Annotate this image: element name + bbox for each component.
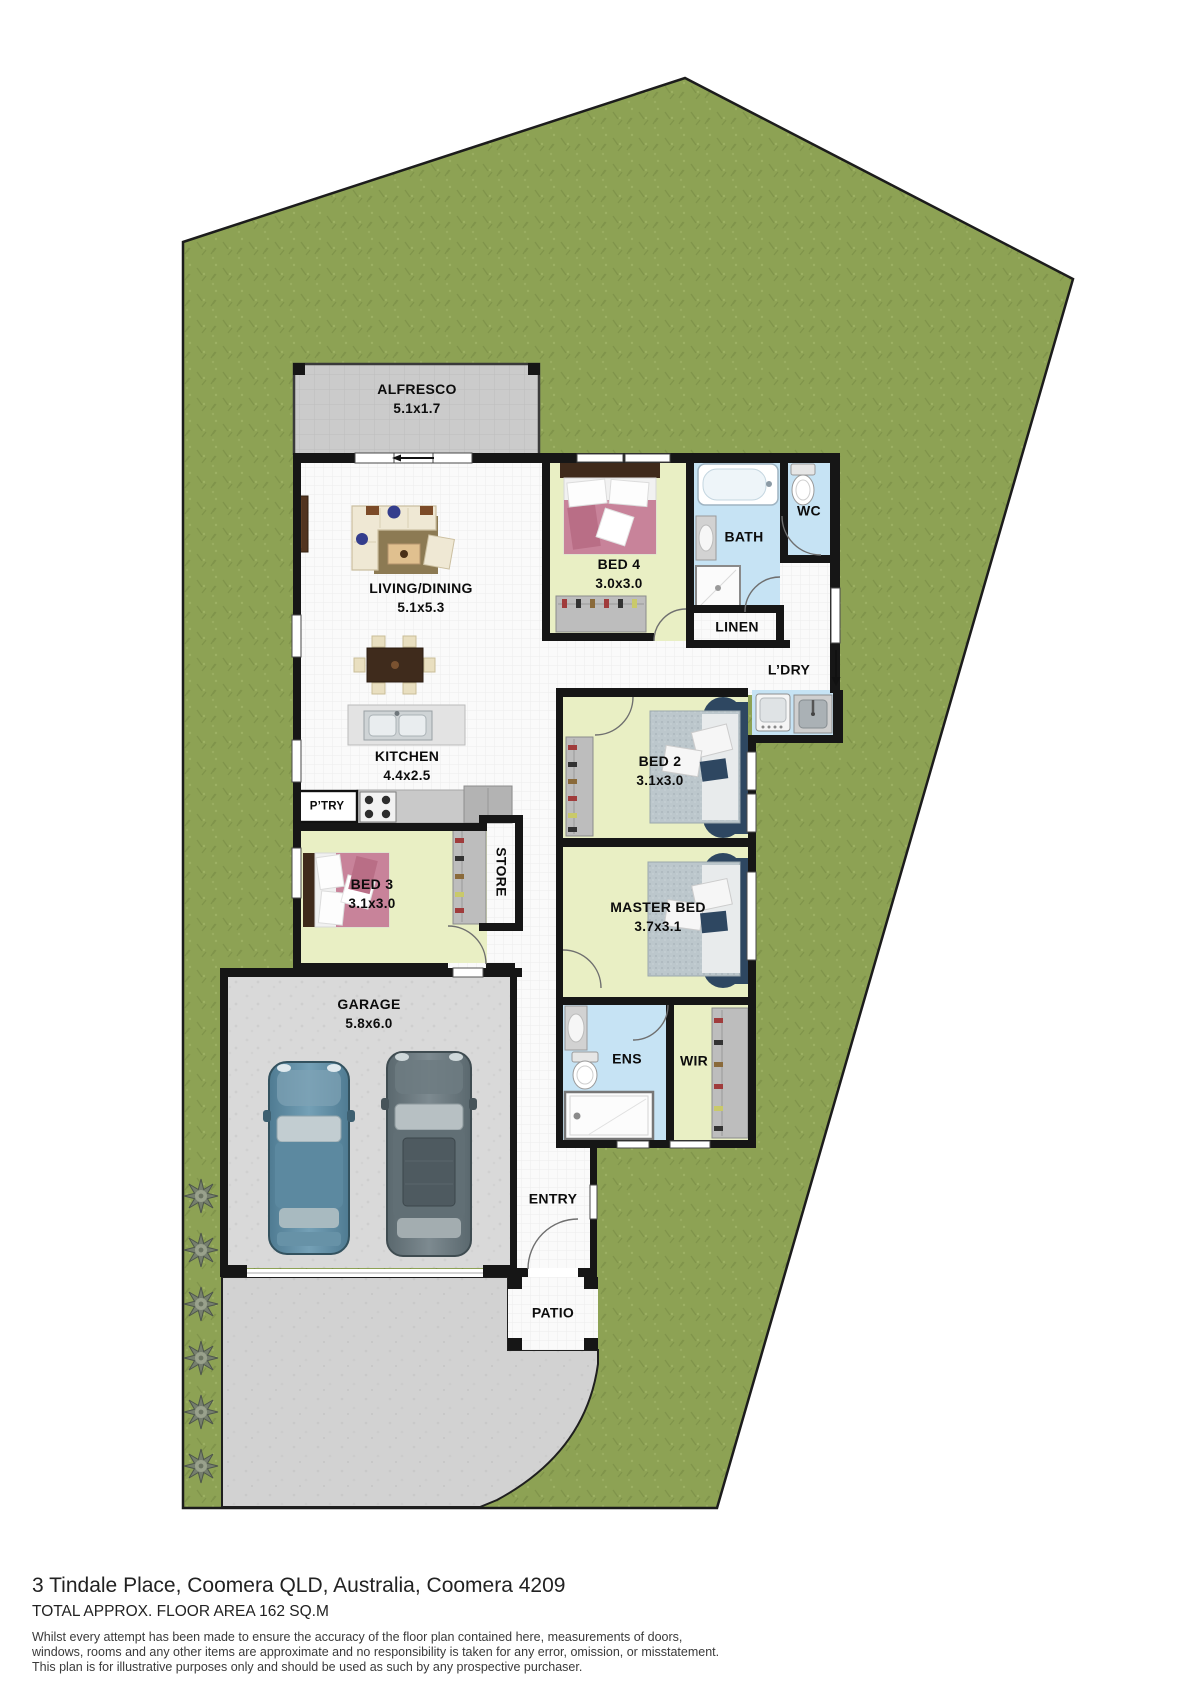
disclaimer: Whilst every attempt has been made to en… [32,1630,719,1674]
bush-icon [184,1287,218,1321]
room-name: MASTER BED [610,899,706,915]
garage-internal-door [453,968,483,977]
room-name: ALFRESCO [377,381,456,397]
bed-4 [560,463,660,554]
room-name: LIVING/DINING [369,580,472,596]
room-label-patio: PATIO [532,1304,574,1323]
room-name: WIR [680,1053,708,1069]
address: 3 Tindale Place, Coomera QLD, Australia,… [32,1572,719,1599]
window [747,794,756,832]
room-name: WC [797,503,821,519]
sink-bowl [369,715,396,736]
window [292,740,301,782]
room-name: BED 3 [351,876,394,892]
bath-shower [696,566,740,610]
bush-icon [184,1395,218,1429]
room-label-bed3: BED 33.1x3.0 [348,875,395,913]
wardrobe-bed3 [453,829,486,924]
room-name: KITCHEN [375,748,439,764]
room-name: BED 2 [639,753,682,769]
ens-sink [565,1006,587,1050]
bush-icon [184,1179,218,1213]
room-name: LINEN [715,619,759,635]
window [670,1141,710,1148]
room-label-wc: WC [797,502,821,521]
window [292,848,301,898]
stove [360,792,396,822]
pillow [567,479,607,507]
coffee-table [388,544,420,564]
room-name: BATH [724,529,763,545]
room-label-ens: ENS [612,1050,642,1069]
room-dimensions: 3.1x3.0 [636,771,683,790]
pillow [316,854,344,889]
window [617,1141,649,1148]
room-label-bath: BATH [724,528,763,547]
car-blue [263,1062,355,1254]
room-dimensions: 4.4x2.5 [375,766,439,785]
room-name: L’DRY [768,662,810,678]
room-label-master-bed: MASTER BED3.7x3.1 [610,898,706,936]
pillow [609,479,649,506]
window [747,872,756,960]
toilet-wc [791,464,815,505]
sink-bowl [399,715,426,736]
sliding-door [355,453,472,463]
toilet-ens [572,1052,598,1089]
room-label-living-dining: LIVING/DINING5.1x5.3 [369,579,472,617]
faucet [395,711,400,716]
room-name: BED 4 [598,556,641,572]
disclaimer-line: Whilst every attempt has been made to en… [32,1630,719,1645]
bush-icon [184,1449,218,1483]
room-label-alfresco: ALFRESCO5.1x1.7 [377,380,456,418]
bathtub [698,464,778,505]
room-name: P’TRY [310,801,344,813]
room-name: ENS [612,1051,642,1067]
room-label-entry: ENTRY [529,1190,577,1209]
wardrobe-bed4 [556,596,646,632]
front-door-opening [528,1268,578,1277]
wardrobe-bed2 [566,737,593,836]
room-label-bed2: BED 23.1x3.0 [636,752,683,790]
bush-icon [184,1233,218,1267]
wardrobe-wir [712,1008,748,1138]
room-dimensions: 5.8x6.0 [337,1014,400,1033]
room-label-ldry: L’DRY [768,661,810,680]
room-name: STORE [494,847,510,896]
bush-icon [184,1341,218,1375]
patio-post [584,1277,598,1289]
room-dimensions: 3.0x3.0 [595,574,642,593]
window [590,1185,597,1219]
room-dimensions: 3.7x3.1 [610,917,706,936]
room-name: PATIO [532,1305,574,1321]
room-dimensions: 5.1x1.7 [377,399,456,418]
pillow [318,891,345,925]
washing-machine [756,694,790,731]
room-label-linen: LINEN [715,618,759,637]
footer: 3 Tindale Place, Coomera QLD, Australia,… [32,1572,719,1674]
laundry-door [831,588,840,643]
car-suv [381,1052,477,1256]
patio-post [584,1338,598,1350]
room-label-store: STORE [492,847,511,896]
floorplan-canvas: ALFRESCO5.1x1.7LIVING/DINING5.1x5.3BED 4… [0,0,1200,1697]
room-label-wir: WIR [680,1052,708,1071]
floor-area: TOTAL APPROX. FLOOR AREA 162 SQ.M [32,1601,719,1623]
room-label-garage: GARAGE5.8x6.0 [337,995,400,1033]
ens-shower [565,1092,653,1139]
room-label-bed4: BED 43.0x3.0 [595,555,642,593]
floorplan-drawing [0,0,1200,1697]
laundry-tub [794,695,832,733]
bath-sink [696,516,716,560]
room-name: GARAGE [337,996,400,1012]
window [625,454,670,462]
window [577,454,623,462]
patio-post [508,1338,522,1350]
kitchen-island [348,705,465,745]
disclaimer-line: This plan is for illustrative purposes o… [32,1660,719,1675]
disclaimer-line: windows, rooms and any other items are a… [32,1645,719,1660]
window [292,615,301,657]
room-dimensions: 5.1x5.3 [369,598,472,617]
armchair [424,535,455,569]
room-label-kitchen: KITCHEN4.4x2.5 [375,747,439,785]
window [747,752,756,790]
room-label-ptry: P’TRY [310,798,344,817]
patio-post [508,1277,522,1289]
room-name: ENTRY [529,1191,577,1207]
room-dimensions: 3.1x3.0 [348,894,395,913]
